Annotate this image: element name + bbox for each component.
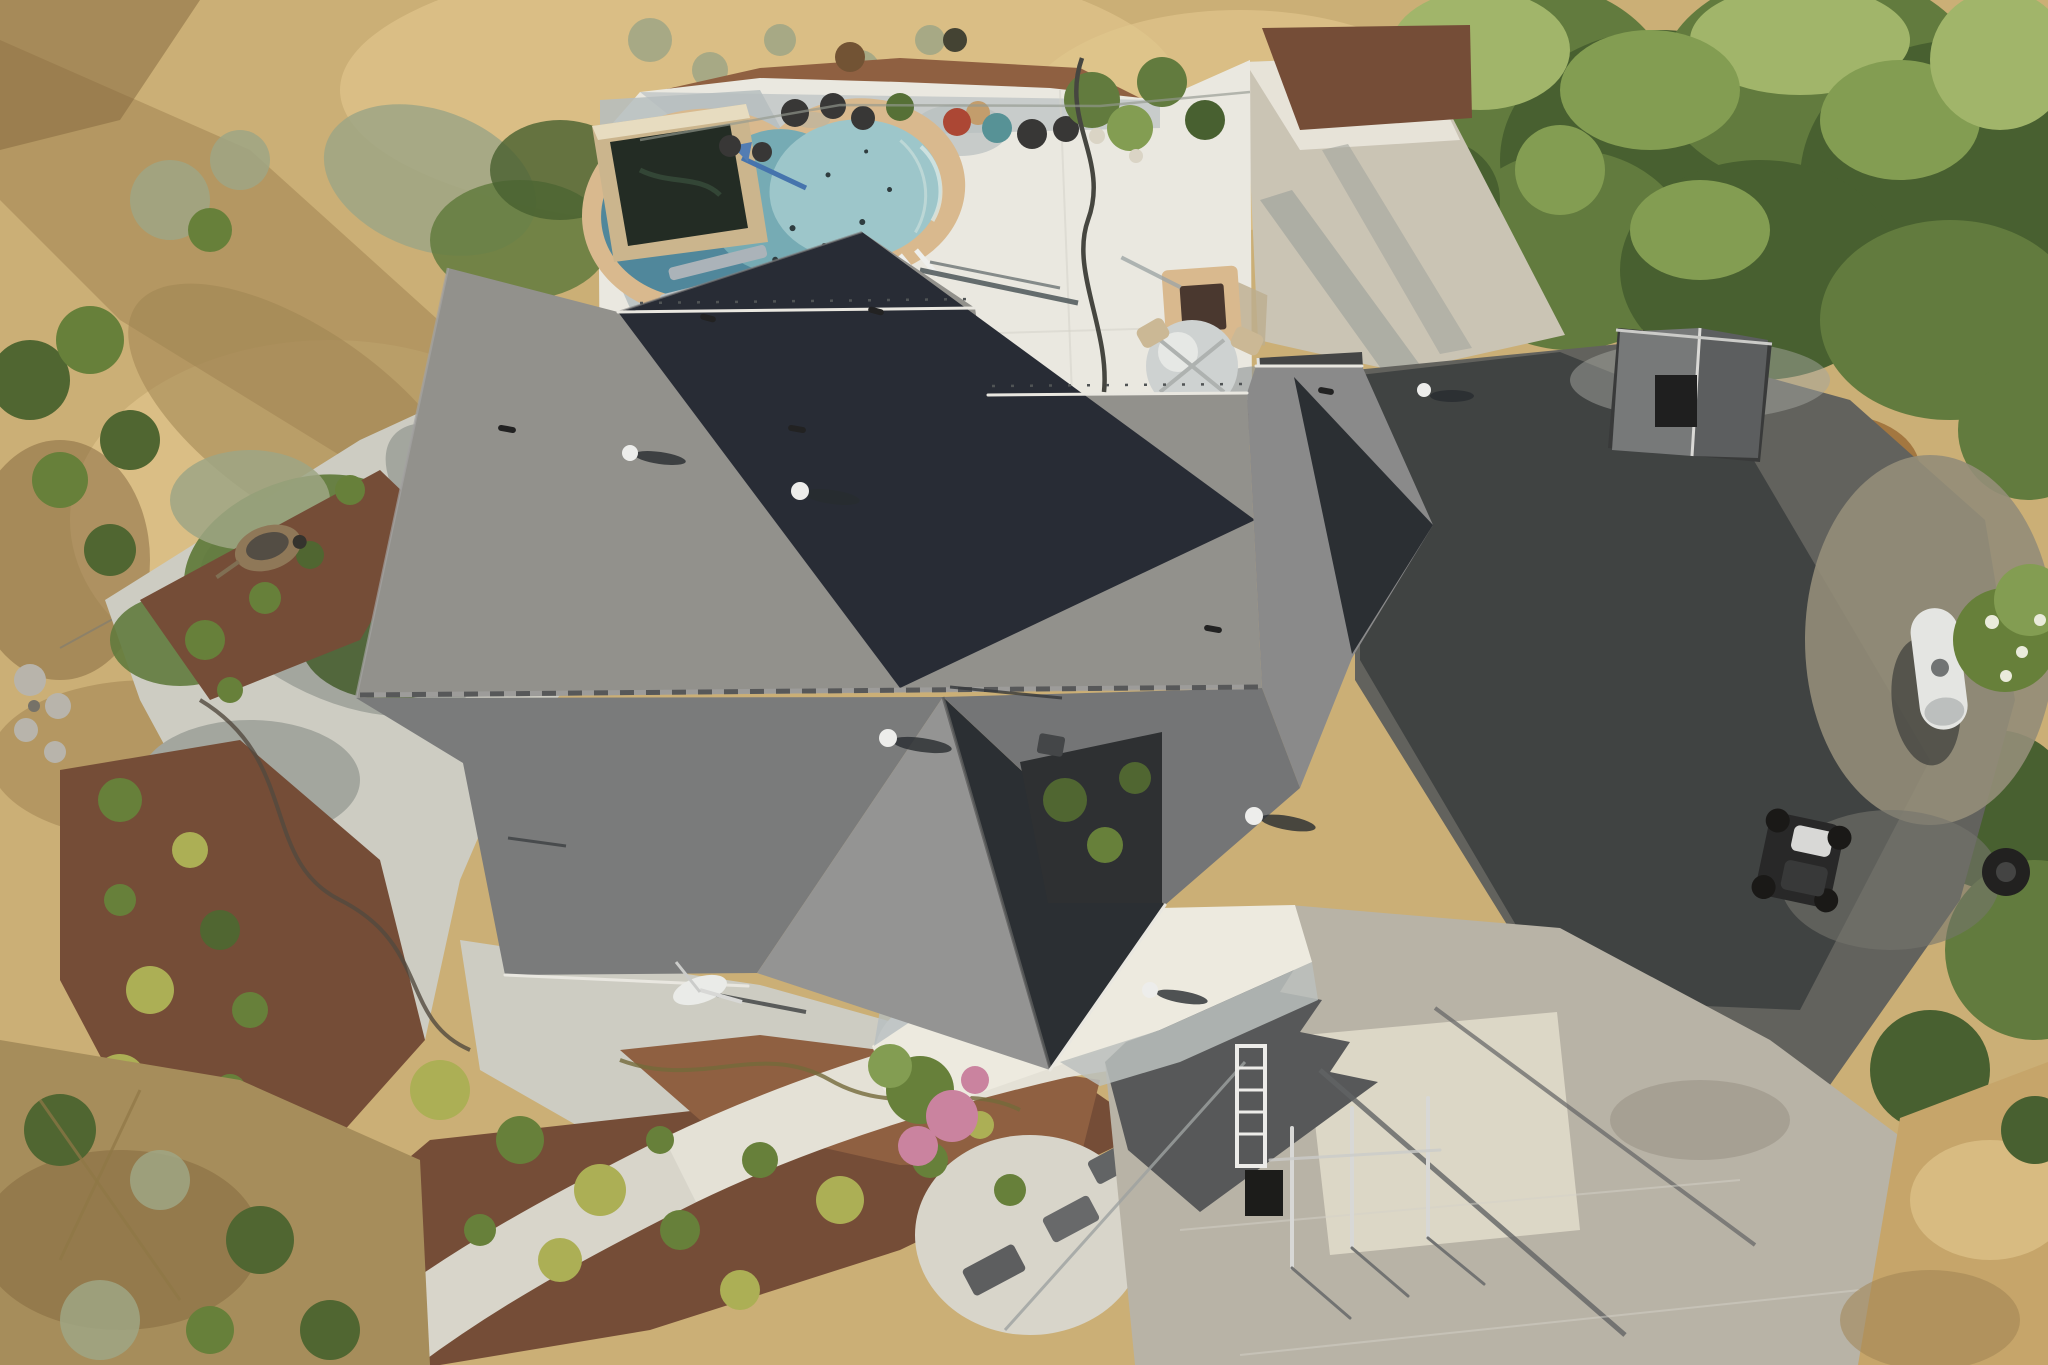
scene-canvas (0, 0, 2048, 1365)
aerial-photo (0, 0, 2048, 1365)
sunlight-wash (0, 0, 2048, 1365)
